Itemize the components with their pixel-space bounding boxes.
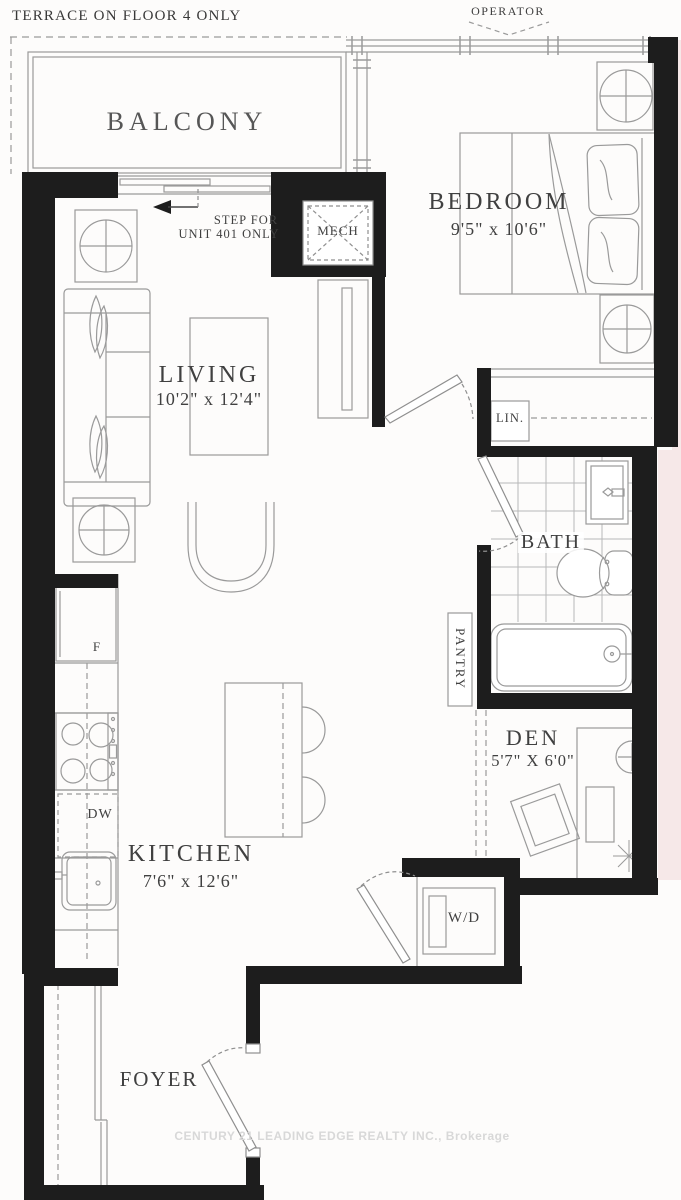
vanity-sink	[586, 461, 628, 524]
nightstand-top	[597, 62, 653, 130]
bath-label: BATH	[518, 532, 584, 553]
end-table-top	[75, 210, 137, 282]
toilet	[557, 549, 633, 597]
bedroom-window	[346, 36, 654, 177]
kitchen-island	[225, 683, 302, 837]
armchair	[188, 502, 274, 592]
island-stools	[302, 707, 325, 823]
dishwasher	[58, 794, 118, 857]
linen-closet	[491, 369, 654, 441]
step-arrow-leader	[168, 186, 198, 207]
foyer-label: FOYER	[120, 1068, 199, 1090]
floor-plan: TERRACE ON FLOOR 4 ONLY OPERATOR BALCONY…	[0, 0, 681, 1200]
living-label: LIVING	[159, 363, 260, 388]
balcony-label: BALCONY	[107, 108, 268, 135]
operator-label: OPERATOR	[471, 5, 545, 18]
kitchen-sink	[46, 852, 116, 910]
fridge-label: F	[93, 640, 101, 654]
bedroom-label: BEDROOM	[428, 190, 569, 215]
step-note-line2: UNIT 401 ONLY	[178, 228, 279, 241]
end-table-bottom	[73, 498, 135, 562]
terrace-note-label: TERRACE ON FLOOR 4 ONLY	[12, 9, 241, 25]
linen-label: LIN.	[496, 412, 524, 425]
media-console	[318, 280, 368, 418]
sofa	[64, 289, 150, 506]
mech-label: MECH	[317, 224, 359, 238]
kitchen-dims: 7'6" x 12'6"	[143, 872, 239, 891]
sliding-door	[115, 176, 273, 194]
bedroom-dims: 9'5" x 10'6"	[451, 220, 547, 239]
den-dims: 5'7" X 6'0"	[491, 752, 575, 769]
bath-door	[478, 456, 523, 551]
nightstand-bottom	[600, 295, 654, 363]
operator-marks	[469, 22, 549, 35]
pantry-label: PANTRY	[453, 628, 467, 690]
floor-plan-drawing	[0, 0, 681, 1200]
den-chair	[511, 784, 580, 856]
washer-dryer-label: W/D	[448, 911, 480, 927]
watermark: CENTURY 21 LEADING EDGE REALTY INC., Bro…	[174, 1130, 509, 1143]
living-dims: 10'2" x 12'4"	[156, 390, 262, 409]
wd-door	[357, 872, 415, 963]
dishwasher-label: DW	[87, 808, 112, 823]
bathtub	[491, 624, 632, 691]
foyer-closet	[58, 984, 107, 1186]
pillow	[587, 144, 639, 285]
bedroom-door	[385, 375, 473, 423]
fridge	[56, 587, 116, 661]
den-divider-dashed	[476, 710, 486, 858]
den-label: DEN	[506, 726, 560, 749]
kitchen-label: KITCHEN	[128, 842, 254, 867]
step-note-line1: STEP FOR	[214, 214, 278, 227]
